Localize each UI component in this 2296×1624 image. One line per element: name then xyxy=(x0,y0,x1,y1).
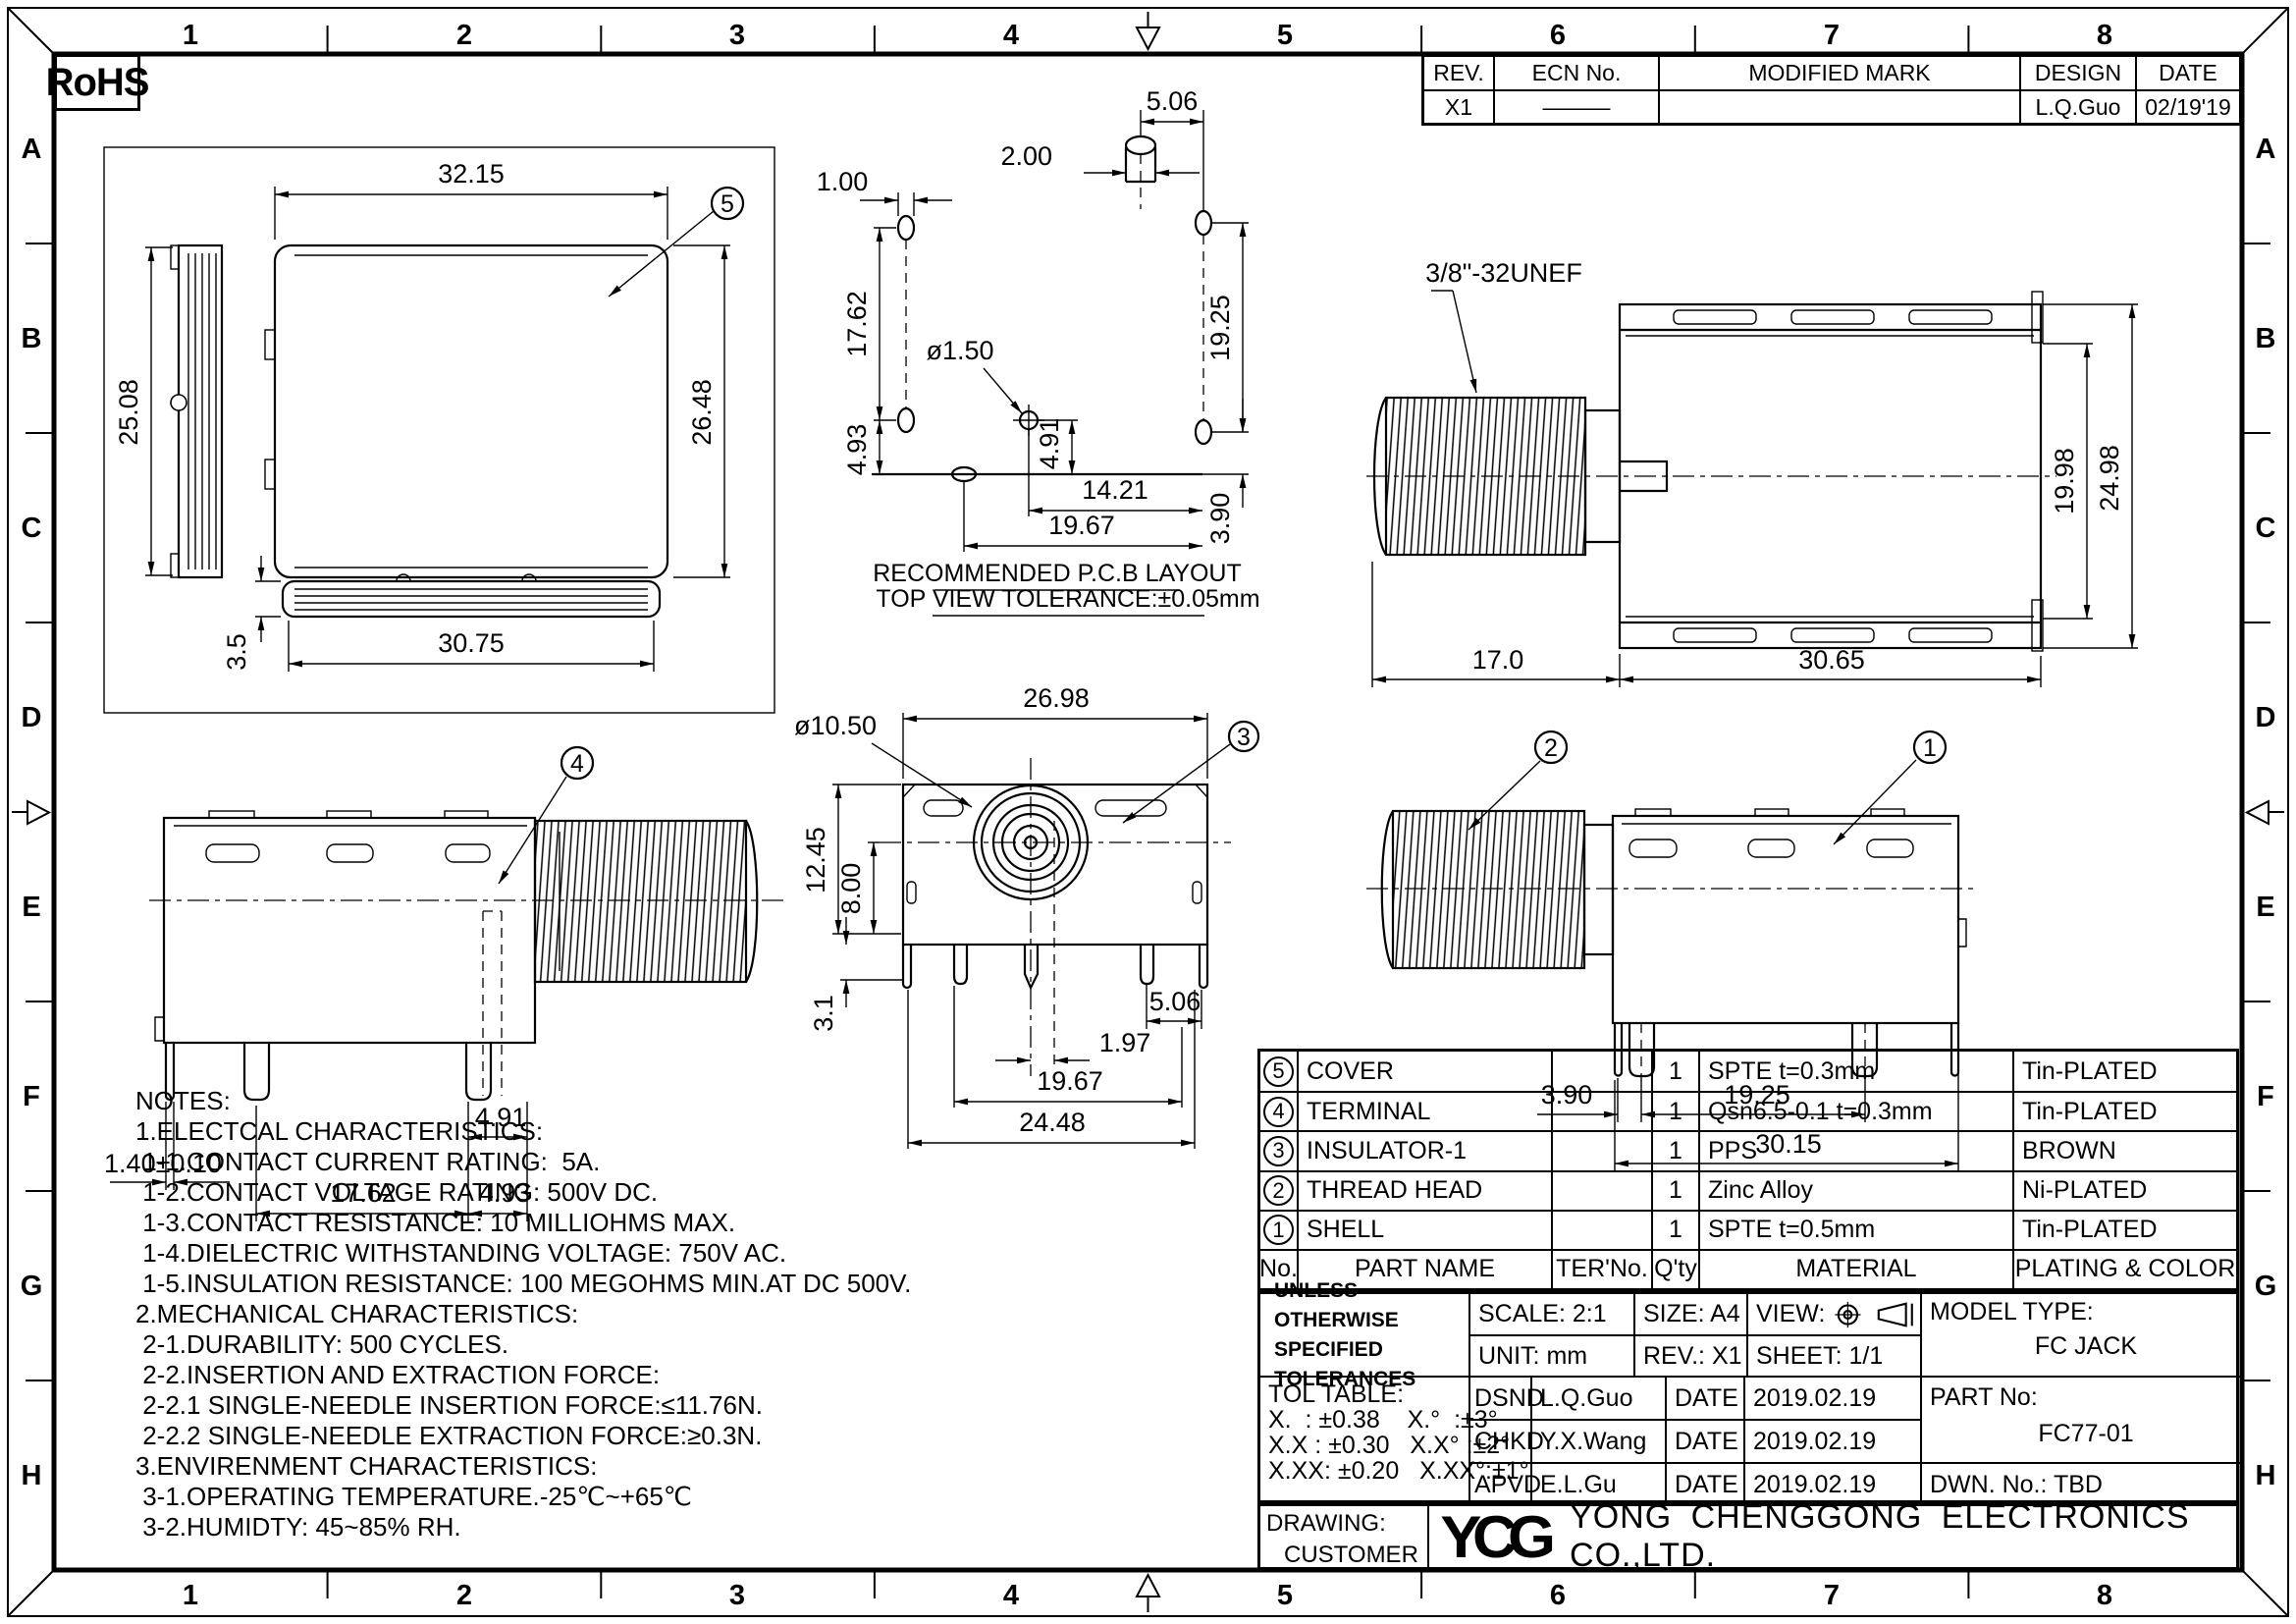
bom-plating-header: PLATING & COLOR xyxy=(2012,1249,2236,1288)
zone-letter: C xyxy=(2256,513,2276,544)
dim-front-19-67: 19.67 xyxy=(1037,1066,1103,1096)
ecn-value: ——— xyxy=(1493,89,1658,123)
bom-part: COVER xyxy=(1297,1052,1551,1091)
balloon-4-number: 4 xyxy=(570,750,584,778)
tolerance-table: TOL TABLE: X. : ±0.38 X.° :±3° X.X : ±0.… xyxy=(1260,1378,1470,1506)
bom-qty: 1 xyxy=(1651,1170,1698,1210)
date-header: DATE xyxy=(2135,57,2239,89)
rev-cell: REV.: X1 xyxy=(1635,1336,1748,1378)
bom-qty: 1 xyxy=(1651,1091,1698,1130)
view-label: VIEW: xyxy=(1756,1300,1825,1328)
dsnd-name: L.Q.Guo xyxy=(1532,1378,1667,1421)
bom-material: SPTE t=0.5mm xyxy=(1698,1210,2012,1249)
zone-letter: D xyxy=(2256,702,2276,733)
bom-ter xyxy=(1551,1170,1651,1210)
bom-qty: 1 xyxy=(1651,1130,1698,1169)
bom-ter xyxy=(1551,1052,1651,1091)
bom-balloon-2: 2 xyxy=(1263,1175,1294,1206)
dim-pcb-19-25: 19.25 xyxy=(1205,295,1235,361)
dim-pcb-5-06: 5.06 xyxy=(1147,86,1199,116)
bom-plating: Ni-PLATED xyxy=(2012,1170,2236,1210)
modified-mark-value xyxy=(1658,89,2019,123)
dim-top-17-0: 17.0 xyxy=(1472,645,1524,675)
ecn-header: ECN No. xyxy=(1493,57,1658,89)
drawing-customer-cell: DRAWING: CUSTOMER xyxy=(1260,1506,1429,1567)
pcb-caption: RECOMMENDED P.C.B LAYOUT xyxy=(873,560,1242,587)
bom-balloon-3: 3 xyxy=(1263,1136,1294,1166)
zone-letter: G xyxy=(2255,1271,2277,1302)
dim-front-26-98: 26.98 xyxy=(1023,683,1090,713)
dim-cover-thickness: 3.5 xyxy=(222,633,251,671)
zone-number: 4 xyxy=(1003,1580,1019,1611)
dsnd-label: DSND xyxy=(1470,1378,1532,1421)
zone-number: 2 xyxy=(456,1580,472,1611)
zone-number: 3 xyxy=(729,20,745,51)
balloon-5-number: 5 xyxy=(721,190,734,218)
zone-number: 5 xyxy=(1277,1580,1293,1611)
zone-letter: B xyxy=(2256,323,2276,354)
zone-letter: H xyxy=(22,1460,42,1491)
bom-balloon-cell: 5 xyxy=(1260,1052,1297,1091)
drawing-label: DRAWING: xyxy=(1266,1510,1421,1538)
bom-balloon-1: 1 xyxy=(1263,1215,1294,1245)
design-header: DESIGN xyxy=(2019,57,2135,89)
dim-front-24-48: 24.48 xyxy=(1019,1108,1086,1137)
chkd-name: Y.X.Wang xyxy=(1532,1421,1667,1464)
dim-front-8-00: 8.00 xyxy=(836,863,866,915)
bom-balloon-5: 5 xyxy=(1263,1056,1294,1087)
pcb-tolerance-caption: TOP VIEW TOLERANCE:±0.05mm xyxy=(876,585,1259,613)
zone-letter: F xyxy=(23,1081,40,1112)
zone-letter: D xyxy=(22,702,42,733)
pcb-layout-view: 5.06 2.00 1.00 17.62 4.93 ø1.50 4.91 14.… xyxy=(817,86,1260,616)
bom-material-header: MATERIAL xyxy=(1698,1249,2012,1288)
bom-balloon-cell: 3 xyxy=(1260,1130,1297,1169)
zone-letter: C xyxy=(22,513,42,544)
zone-number: 4 xyxy=(1003,20,1019,51)
dsnd-date: 2019.02.19 xyxy=(1745,1378,1922,1421)
chkd-date-label: DATE xyxy=(1667,1421,1745,1464)
zone-number: 6 xyxy=(1550,1580,1566,1611)
bom-balloon-4: 4 xyxy=(1263,1097,1294,1127)
bom-ter xyxy=(1551,1091,1651,1130)
notes-block: NOTES: 1.ELECTCAL CHARACTERISTICS: 1-1.C… xyxy=(135,1086,911,1543)
model-type-cell: MODEL TYPE: FC JACK xyxy=(1922,1294,2242,1378)
sheet-cell: SHEET: 1/1 xyxy=(1748,1336,1922,1378)
part-no-value: FC77-01 xyxy=(2038,1420,2133,1448)
dim-cover-height: 26.48 xyxy=(687,379,717,446)
rev-header: REV. xyxy=(1424,57,1493,89)
dim-top-24-98: 24.98 xyxy=(2095,445,2124,512)
zone-letter: A xyxy=(2256,134,2276,165)
title-block: UNLESS OTHERWISE SPECIFIED TOLERANCES SC… xyxy=(1257,1291,2239,1503)
model-type-value: FC JACK xyxy=(2035,1332,2137,1361)
chkd-label: CHKD xyxy=(1470,1421,1532,1464)
bom-ter xyxy=(1551,1130,1651,1169)
dim-pcb-hole-dia: ø1.50 xyxy=(926,336,993,365)
revision-table: REV. ECN No. MODIFIED MARK DESIGN DATE X… xyxy=(1421,54,2242,126)
dim-pcb-19-67: 19.67 xyxy=(1048,511,1115,540)
cover-view: 32.15 26.48 25.08 30.75 3.5 5 xyxy=(104,147,774,713)
zone-number: 7 xyxy=(1824,20,1840,51)
bom-part: SHELL xyxy=(1297,1210,1551,1249)
bom-ter xyxy=(1551,1210,1651,1249)
bom-balloon-cell: 1 xyxy=(1260,1210,1297,1249)
dim-cover-width: 32.15 xyxy=(438,159,505,189)
apvd-label: APVD xyxy=(1470,1464,1532,1506)
balloon-2-number: 2 xyxy=(1544,734,1558,762)
first-angle-target-icon xyxy=(1836,1301,1861,1326)
dim-pcb-2-00: 2.00 xyxy=(1000,141,1052,171)
bom-balloon-cell: 2 xyxy=(1260,1170,1297,1210)
zone-number: 7 xyxy=(1824,1580,1840,1611)
dim-front-5-06: 5.06 xyxy=(1149,987,1201,1016)
dim-cover-height-side: 25.08 xyxy=(114,379,143,446)
zone-number: 1 xyxy=(183,1580,198,1611)
tolerance-note: UNLESS OTHERWISE SPECIFIED TOLERANCES xyxy=(1260,1294,1470,1378)
tolerance-note-line1: UNLESS OTHERWISE xyxy=(1268,1276,1468,1335)
zone-letter: E xyxy=(22,892,40,923)
zone-number: 3 xyxy=(729,1580,745,1611)
projection-symbols xyxy=(1831,1299,1920,1330)
zone-letter: F xyxy=(2257,1081,2274,1112)
bom-part: THREAD HEAD xyxy=(1297,1170,1551,1210)
dim-pcb-17-62: 17.62 xyxy=(842,291,872,357)
thread-spec-label: 3/8"-32UNEF xyxy=(1425,258,1582,288)
bom-qty: 1 xyxy=(1651,1052,1698,1091)
dim-front-dia: ø10.50 xyxy=(794,711,877,740)
model-type-label: MODEL TYPE: xyxy=(1930,1298,2094,1326)
bom-part: TERMINAL xyxy=(1297,1091,1551,1130)
view-cell: VIEW: xyxy=(1748,1294,1922,1336)
dim-top-19-98: 19.98 xyxy=(2050,448,2079,514)
zone-number: 8 xyxy=(2097,1580,2112,1611)
chkd-date: 2019.02.19 xyxy=(1745,1421,1922,1464)
bom-material: Zinc Alloy xyxy=(1698,1170,2012,1210)
zone-number: 5 xyxy=(1277,20,1293,51)
date-value: 02/19'19 xyxy=(2135,89,2239,123)
front-view: 26.98 ø10.50 3 12.45 8.00 3.1 5.06 1.97 … xyxy=(794,683,1258,1149)
bom-part: INSULATOR-1 xyxy=(1297,1130,1551,1169)
zone-letter: H xyxy=(2256,1460,2276,1491)
dsnd-date-label: DATE xyxy=(1667,1378,1745,1421)
company-name: YONG CHENGGONG ELECTRONICS CO.,LTD. xyxy=(1570,1498,2236,1575)
zone-number: 6 xyxy=(1550,20,1566,51)
company-name-cell: YCG YONG CHENGGONG ELECTRONICS CO.,LTD. xyxy=(1429,1506,2236,1567)
customer-label: CUSTOMER xyxy=(1266,1542,1421,1569)
zone-number: 2 xyxy=(456,20,472,51)
dim-front-12-45: 12.45 xyxy=(801,827,830,893)
company-strip: DRAWING: CUSTOMER YCG YONG CHENGGONG ELE… xyxy=(1257,1503,2239,1570)
part-no-cell: PART No: FC77-01 xyxy=(1922,1378,2242,1464)
bom-plating: Tin-PLATED xyxy=(2012,1052,2236,1091)
bom-material: SPTE t=0.3mm xyxy=(1698,1052,2012,1091)
zone-letter: A xyxy=(22,134,42,165)
balloon-1-number: 1 xyxy=(1923,734,1937,762)
design-value: L.Q.Guo xyxy=(2019,89,2135,123)
zone-number: 1 xyxy=(183,20,198,51)
bom-material: PPS xyxy=(1698,1130,2012,1169)
bom-table: 5 COVER 1 SPTE t=0.3mm Tin-PLATED 4 TERM… xyxy=(1257,1049,2239,1291)
dim-pcb-14-21: 14.21 xyxy=(1082,475,1148,505)
zone-letter: G xyxy=(21,1271,43,1302)
size-cell: SIZE: A4 xyxy=(1635,1294,1748,1336)
dim-front-3-1: 3.1 xyxy=(809,995,838,1032)
dim-top-30-65: 30.65 xyxy=(1798,645,1865,675)
zone-letter: B xyxy=(22,323,42,354)
third-angle-cone-icon xyxy=(1879,1303,1912,1326)
engineering-drawing-sheet: 1 2 3 4 5 6 7 8 1 2 3 4 5 6 7 8 A B C D … xyxy=(0,0,2296,1624)
top-view: 3/8"-32UNEF 19.98 24.98 17.0 30.65 xyxy=(1366,258,2138,687)
dim-pcb-1-00: 1.00 xyxy=(817,167,869,196)
dim-pcb-4-91: 4.91 xyxy=(1035,418,1064,470)
scale-cell: SCALE: 2:1 xyxy=(1470,1294,1635,1336)
dim-cover-bottom-width: 30.75 xyxy=(438,628,505,658)
bom-balloon-cell: 4 xyxy=(1260,1091,1297,1130)
ycg-logo: YCG xyxy=(1440,1503,1546,1571)
bom-plating: BROWN xyxy=(2012,1130,2236,1169)
bom-plating: Tin-PLATED xyxy=(2012,1091,2236,1130)
dim-pcb-4-93: 4.93 xyxy=(842,424,872,476)
zone-letter: E xyxy=(2256,892,2274,923)
zone-number: 8 xyxy=(2097,20,2112,51)
balloon-3-number: 3 xyxy=(1237,724,1251,751)
bom-ter-header: TER'No. xyxy=(1551,1249,1651,1288)
modified-mark-header: MODIFIED MARK xyxy=(1658,57,2019,89)
unit-cell: UNIT: mm xyxy=(1470,1336,1635,1378)
bom-material: Qsn6.5-0.1 t=0.3mm xyxy=(1698,1091,2012,1130)
bom-plating: Tin-PLATED xyxy=(2012,1210,2236,1249)
bom-qty-header: Q'ty xyxy=(1651,1249,1698,1288)
part-no-label: PART No: xyxy=(1930,1383,2038,1412)
rohs-mark: RoHS xyxy=(54,54,140,111)
bom-qty: 1 xyxy=(1651,1210,1698,1249)
rev-value: X1 xyxy=(1424,89,1493,123)
dim-pcb-3-90: 3.90 xyxy=(1205,493,1235,545)
dim-front-1-97: 1.97 xyxy=(1099,1028,1151,1057)
